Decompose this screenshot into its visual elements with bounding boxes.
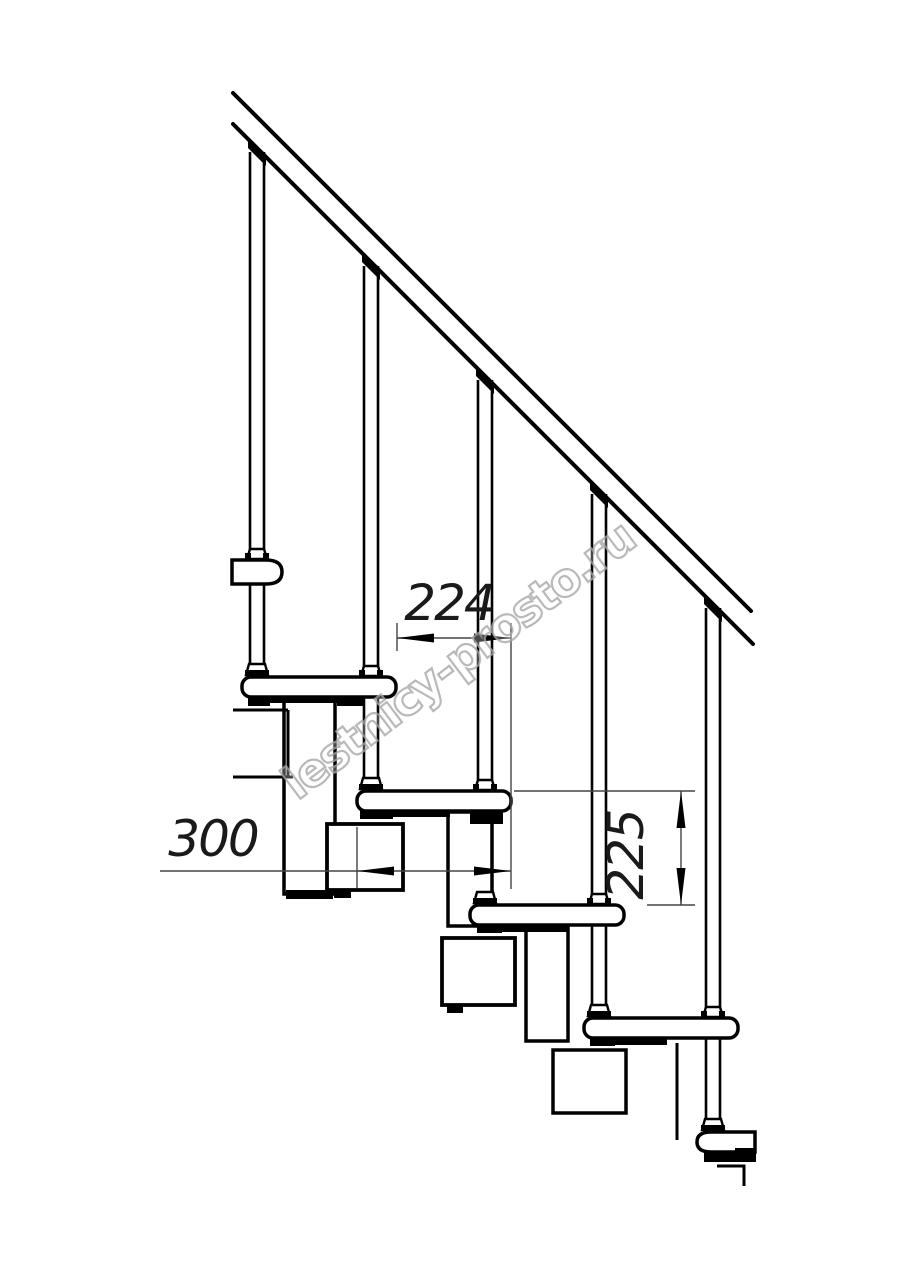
module-joint bbox=[447, 1004, 463, 1013]
break-edge bbox=[717, 1166, 744, 1186]
baluster-5 bbox=[704, 593, 722, 1121]
module-block-2 bbox=[327, 824, 403, 890]
arrow-up-icon bbox=[677, 791, 686, 828]
baluster-1 bbox=[248, 137, 266, 666]
tread-3 bbox=[357, 791, 511, 811]
blueprint-page: 224 300 225 lestnicy-prosto.ru bbox=[0, 0, 914, 1280]
tread-1 bbox=[232, 560, 282, 584]
dimension-300-label: 300 bbox=[168, 810, 258, 868]
module-block-4 bbox=[553, 1050, 626, 1113]
tread-4 bbox=[470, 905, 624, 925]
module-column-3 bbox=[526, 927, 568, 1041]
watermark: lestnicy-prosto.ru bbox=[272, 510, 645, 810]
staircase-drawing: 224 300 225 lestnicy-prosto.ru bbox=[0, 0, 914, 1280]
tread-5 bbox=[584, 1018, 738, 1038]
module-joint bbox=[334, 889, 351, 898]
arrow-left-icon bbox=[397, 634, 434, 643]
dimension-225-label: 225 bbox=[597, 810, 655, 900]
arrow-down-icon bbox=[677, 868, 686, 905]
module-block-3 bbox=[442, 938, 515, 1005]
